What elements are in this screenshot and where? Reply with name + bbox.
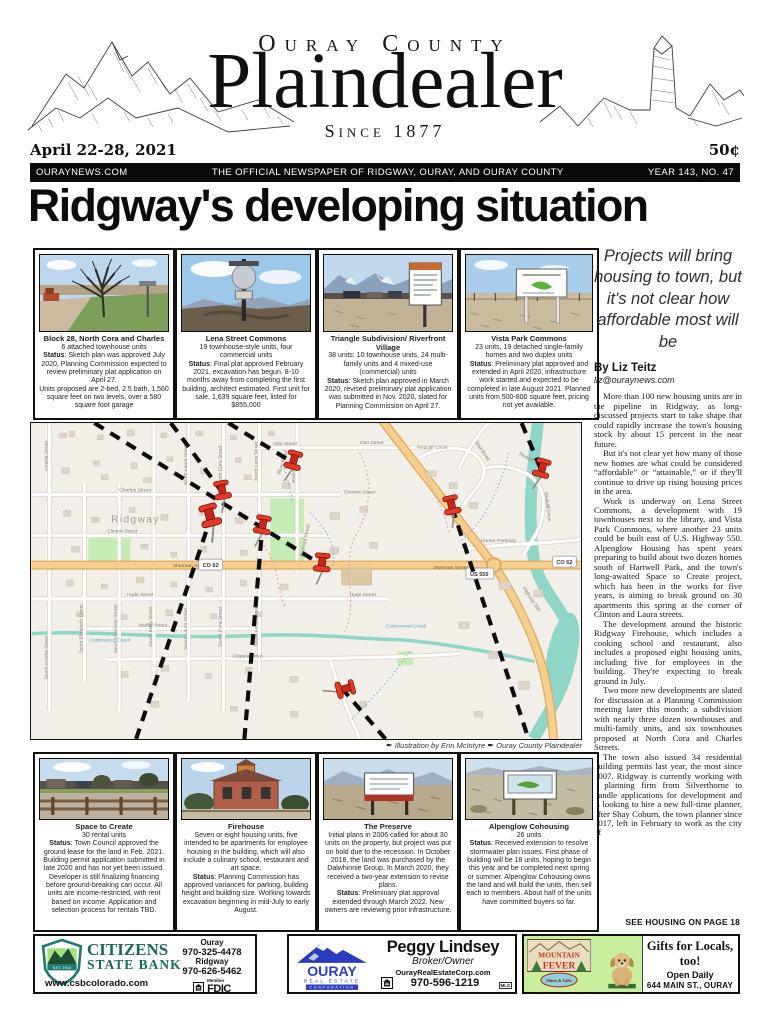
- svg-text:Chipeta Drive: Chipeta Drive: [232, 654, 262, 660]
- development-title: Firehouse: [181, 823, 311, 832]
- svg-text:South Charlotte Street: South Charlotte Street: [113, 604, 119, 654]
- story-paragraph: The development around the historic Ridg…: [594, 620, 742, 686]
- caption: Triangle Subdivision/ Riverfront Village…: [323, 335, 453, 411]
- development-box-vista-park: Vista Park Commons 23 units, 19 detached…: [459, 248, 599, 420]
- svg-text:US 550: US 550: [470, 572, 489, 578]
- svg-text:OURAY: OURAY: [307, 963, 357, 979]
- development-extra: Units proposed are 2-bed, 2.5 bath, 1,56…: [39, 386, 169, 411]
- development-title: Lena Street Commons: [181, 335, 311, 344]
- photo-space-to-create: [39, 758, 169, 820]
- caption: Firehouse Seven or eight housing units, …: [181, 823, 311, 916]
- photo-alpenglow: [465, 758, 593, 820]
- citizens-bank-contact: Ouray 970-325-4478 Ridgway 970-626-5462 …: [175, 939, 249, 994]
- story-continuation: SEE HOUSING ON PAGE 18: [594, 917, 740, 927]
- svg-text:CO 62: CO 62: [203, 563, 219, 569]
- svg-text:Cottonwood Creek: Cottonwood Creek: [385, 624, 427, 630]
- development-status: Status: Sketch plan approved in March 20…: [323, 378, 453, 412]
- development-box-lena-street: Lena Street Commons 19 townhouse-style u…: [175, 248, 317, 420]
- ad-citizens-state-bank: EST. 1913 CITIZENS STATE BANK www.csbcol…: [33, 934, 257, 994]
- story-deck: Projects will bring housing to town, but…: [594, 246, 742, 353]
- ad-mountain-fever: MOUNTAIN FEVER Shirts & Gifts Gifts for …: [522, 934, 740, 994]
- realtor-phone: 970-596-1219: [385, 977, 505, 989]
- development-status: Status: Planning Commission has approved…: [181, 874, 311, 916]
- development-title: Alpenglow Cohousing: [465, 823, 593, 832]
- svg-text:EST. 1913: EST. 1913: [53, 965, 72, 970]
- photo-firehouse: [181, 758, 311, 820]
- svg-text:South Cora Street: South Cora Street: [218, 606, 224, 646]
- svg-text:Ridgway: Ridgway: [111, 514, 159, 525]
- pen-icon: ✒: [386, 741, 393, 750]
- caption: The Preserve Initial plans in 2006 calle…: [323, 823, 453, 916]
- photo-lena-street: [181, 254, 311, 332]
- svg-text:South Mary Street: South Mary Street: [148, 606, 154, 647]
- svg-text:Hyde Street: Hyde Street: [127, 592, 154, 598]
- development-units: 19 townhouse-style units, four commercia…: [181, 344, 311, 361]
- svg-text:South Amelia Street: South Amelia Street: [44, 635, 50, 679]
- development-box-alpenglow: Alpenglow Cohousing 26 units Status: Rec…: [459, 752, 599, 932]
- svg-text:North Lena Street: North Lena Street: [253, 441, 259, 481]
- development-box-space-to-create: Space to Create 30 rental units Status: …: [33, 752, 175, 932]
- svg-text:Otto Street: Otto Street: [360, 440, 385, 446]
- caption: Block 28, North Cora and Charles 6 attac…: [39, 335, 169, 411]
- development-units: 6 attached townhouse units: [39, 344, 169, 352]
- realtor-name: Peggy Lindsey: [373, 938, 513, 957]
- story-column: Projects will bring housing to town, but…: [594, 246, 742, 838]
- development-title: Block 28, North Cora and Charles: [39, 335, 169, 344]
- development-title: Vista Park Commons: [465, 335, 593, 344]
- mountain-fever-panel: MOUNTAIN FEVER Shirts & Gifts: [524, 936, 643, 992]
- equal-housing-icon: [193, 982, 204, 993]
- svg-text:REAL ESTATE: REAL ESTATE: [304, 978, 361, 984]
- issue-date: April 22-28, 2021: [30, 141, 177, 159]
- photo-vista-park: [465, 254, 593, 332]
- development-status: Status: Town Council approved the ground…: [39, 840, 169, 916]
- development-units: 30 rental units: [39, 832, 169, 840]
- citizens-bank-website: www.csbcolorado.com: [45, 978, 148, 989]
- story-paragraph: More than 100 new housing units are in t…: [594, 392, 742, 449]
- caption: Alpenglow Cohousing 26 units Status: Rec…: [465, 823, 593, 907]
- cover-price: 50¢: [709, 141, 740, 159]
- story-author-email: liz@ouraynews.com: [594, 375, 742, 385]
- puppy-illustration: [606, 948, 638, 990]
- illustration-credit: Illustration by Erin McIntyre: [395, 741, 485, 750]
- ad-headline: Gifts for Locals, too!: [642, 939, 738, 969]
- svg-text:North Cora Street: North Cora Street: [218, 445, 224, 484]
- ridgway-map: Otto Street Otto Street Charles Street C…: [30, 422, 582, 740]
- masthead-tagline: Since 1877: [0, 121, 770, 142]
- svg-text:Amelia Street: Amelia Street: [44, 440, 50, 470]
- story-paragraph: Work is underway on Lena Street Commons,…: [594, 497, 742, 620]
- svg-text:Otto Street: Otto Street: [273, 441, 298, 447]
- svg-text:Hunter Parkway: Hunter Parkway: [481, 538, 517, 544]
- story-paragraph: Two more new developments are slated for…: [594, 686, 742, 752]
- svg-text:FEVER: FEVER: [543, 960, 577, 971]
- story-body: More than 100 new housing units are in t…: [594, 392, 742, 838]
- banner-issue: YEAR 143, NO. 47: [648, 167, 734, 178]
- development-status: Status: Received extension to resolve st…: [465, 840, 593, 907]
- svg-text:CO 62: CO 62: [556, 560, 572, 566]
- banner-website: OURAYNEWS.COM: [36, 167, 128, 178]
- mountain-fever-logo: MOUNTAIN FEVER Shirts & Gifts: [527, 939, 591, 989]
- development-units: Seven or eight housing units, five inten…: [181, 832, 311, 874]
- development-units: 23 units, 19 detached single-family home…: [465, 344, 593, 361]
- mountain-fever-text: Gifts for Locals, too! Open Daily 644 MA…: [642, 936, 738, 992]
- svg-text:Charles Street: Charles Street: [119, 488, 151, 494]
- development-status: Status: Preliminary plat approval extend…: [323, 890, 453, 915]
- fdic-logo: FDIC: [207, 984, 231, 994]
- development-title: Triangle Subdivision/ Riverfront Village: [323, 335, 453, 352]
- pen-icon: ✒: [487, 741, 494, 750]
- caption: Lena Street Commons 19 townhouse-style u…: [181, 335, 311, 411]
- main-headline: Ridgway's developing situation: [28, 183, 735, 228]
- citizens-bank-name: CITIZENS STATE BANK: [87, 941, 182, 973]
- development-box-firehouse: Firehouse Seven or eight housing units, …: [175, 752, 317, 932]
- caption: Vista Park Commons 23 units, 19 detached…: [465, 335, 593, 411]
- mls-icon: MLS: [499, 982, 513, 989]
- photo-triangle-subdivision: [323, 254, 453, 332]
- development-units: 26 units: [465, 832, 593, 840]
- development-box-the-preserve: The Preserve Initial plans in 2006 calle…: [317, 752, 459, 932]
- development-units: Initial plans in 2006 called for about 3…: [323, 832, 453, 891]
- svg-text:South Elizabeth Street: South Elizabeth Street: [78, 604, 84, 654]
- development-units: 38 units: 10 townhouse units, 24 multi-f…: [323, 352, 453, 377]
- newspaper-front-page: Ouray County Plaindealer Since 1877 Apri…: [0, 0, 770, 1024]
- svg-text:Clinton Street: Clinton Street: [107, 528, 138, 534]
- map-attribution: ✒ Illustration by Erin McIntyre ✒ Ouray …: [250, 741, 582, 750]
- photo-the-preserve: [323, 758, 453, 820]
- story-paragraph: The town also issued 34 residential buil…: [594, 753, 742, 838]
- development-box-block-28: Block 28, North Cora and Charles 6 attac…: [33, 248, 175, 420]
- svg-text:Cottonwood Creek: Cottonwood Creek: [89, 638, 131, 644]
- realtor-role: Broker/Owner: [373, 956, 513, 967]
- development-title: Space to Create: [39, 823, 169, 832]
- realtor-website: OurayRealEstateCorp.com: [373, 968, 513, 977]
- development-status: Status: Sketch plan was approved July 20…: [39, 352, 169, 386]
- svg-text:South Laura Street: South Laura Street: [183, 607, 189, 649]
- masthead-title: Plaindealer: [0, 42, 770, 121]
- svg-text:Redcliff Circle: Redcliff Circle: [417, 445, 448, 451]
- svg-text:Sherman Street: Sherman Street: [433, 565, 468, 571]
- development-status: Status: Preliminary plat approved and ex…: [465, 361, 593, 411]
- svg-text:CORPORATION: CORPORATION: [310, 986, 355, 990]
- development-title: The Preserve: [323, 823, 453, 832]
- story-paragraph: But it's not clear yet how many of those…: [594, 449, 742, 496]
- story-byline: By Liz Teitz: [594, 362, 742, 374]
- svg-text:Hyde Street: Hyde Street: [350, 592, 377, 598]
- ad-peggy-lindsey: OURAY REAL ESTATE CORPORATION Peggy Lind…: [287, 934, 517, 994]
- ad-phone: 970-325-4408: [642, 991, 738, 994]
- caption: Space to Create 30 rental units Status: …: [39, 823, 169, 916]
- svg-text:Shirts & Gifts: Shirts & Gifts: [546, 978, 572, 983]
- banner-tagline: THE OFFICIAL NEWSPAPER OF RIDGWAY, OURAY…: [212, 167, 564, 178]
- photo-block-28: [39, 254, 169, 332]
- ouray-real-estate-logo: OURAY REAL ESTATE CORPORATION: [293, 939, 371, 991]
- development-box-triangle: Triangle Subdivision/ Riverfront Village…: [317, 248, 459, 420]
- svg-text:MOUNTAIN: MOUNTAIN: [538, 951, 580, 960]
- dateline: April 22-28, 2021 50¢: [30, 141, 740, 161]
- svg-text:Charles Street: Charles Street: [344, 490, 376, 496]
- paper-credit: Ouray County Plaindealer: [496, 741, 582, 750]
- development-status: Status: Final plat approved February 202…: [181, 361, 311, 411]
